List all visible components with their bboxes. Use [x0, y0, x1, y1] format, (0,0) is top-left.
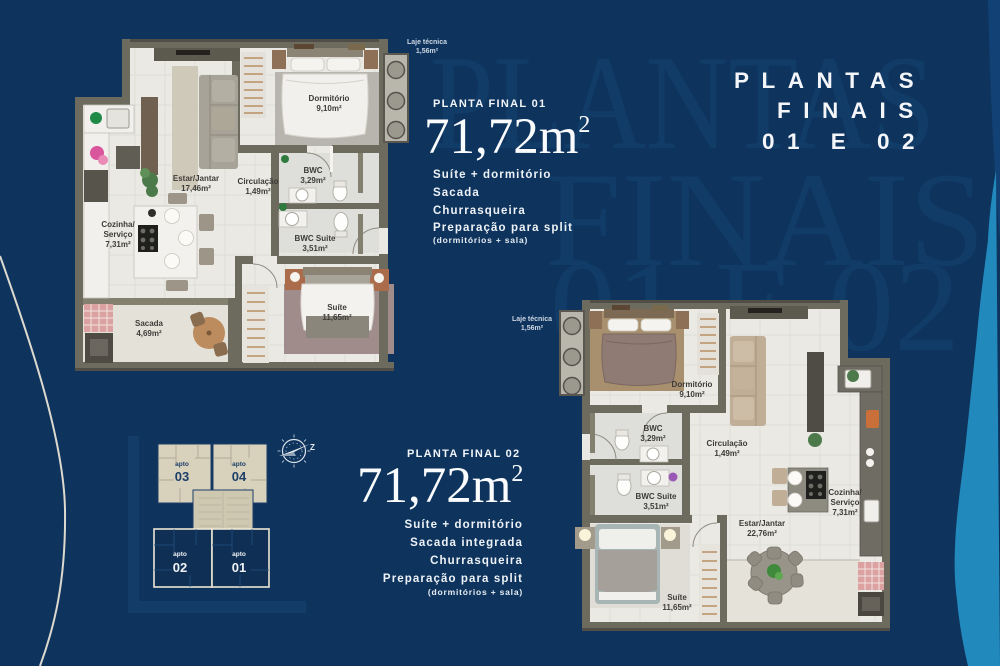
svg-text:apto: apto — [232, 551, 246, 558]
svg-text:4,69m²: 4,69m² — [136, 329, 162, 338]
svg-text:Sacada: Sacada — [433, 187, 480, 199]
svg-text:BWC: BWC — [643, 424, 662, 433]
svg-text:02: 02 — [173, 560, 187, 575]
svg-text:Circulação: Circulação — [707, 439, 748, 448]
svg-text:1,49m²: 1,49m² — [245, 187, 271, 196]
svg-text:Serviço: Serviço — [104, 230, 133, 239]
svg-text:04: 04 — [232, 469, 247, 484]
svg-text:Churrasqueira: Churrasqueira — [433, 205, 526, 217]
svg-text:3,29m²: 3,29m² — [640, 434, 666, 443]
svg-text:Preparação para split: Preparação para split — [383, 573, 523, 585]
svg-text:Sacada: Sacada — [135, 319, 164, 328]
svg-text:17,46m²: 17,46m² — [181, 184, 211, 193]
svg-text:01 E 02: 01 E 02 — [762, 129, 927, 154]
svg-text:Suíte + dormitório: Suíte + dormitório — [433, 169, 552, 181]
svg-text:Preparação para split: Preparação para split — [433, 222, 573, 234]
svg-text:7,31m²: 7,31m² — [832, 508, 858, 517]
svg-text:71,72m2: 71,72m2 — [357, 458, 523, 514]
svg-text:PLANTAS: PLANTAS — [734, 68, 926, 93]
svg-text:Serviço: Serviço — [831, 498, 860, 507]
svg-text:BWC Suite: BWC Suite — [295, 234, 336, 243]
svg-text:Laje técnica: Laje técnica — [407, 39, 447, 46]
svg-text:3,51m²: 3,51m² — [302, 244, 328, 253]
svg-text:22,76m²: 22,76m² — [747, 529, 777, 538]
svg-text:71,72m2: 71,72m2 — [424, 109, 590, 165]
svg-text:9,10m²: 9,10m² — [679, 390, 705, 399]
svg-text:Suíte + dormitório: Suíte + dormitório — [404, 519, 523, 531]
svg-text:3,29m²: 3,29m² — [300, 176, 326, 185]
svg-text:03: 03 — [175, 469, 189, 484]
svg-text:BWC: BWC — [303, 166, 322, 175]
svg-text:1,56m²: 1,56m² — [416, 48, 439, 55]
svg-text:apto: apto — [173, 551, 187, 558]
svg-text:Circulação: Circulação — [238, 177, 279, 186]
svg-text:Estar/Jantar: Estar/Jantar — [739, 519, 785, 528]
svg-text:Laje técnica: Laje técnica — [512, 316, 552, 323]
svg-text:Churrasqueira: Churrasqueira — [430, 555, 523, 567]
svg-text:Cozinha/: Cozinha/ — [101, 220, 135, 229]
svg-text:Cozinha/: Cozinha/ — [828, 488, 862, 497]
svg-text:1,56m²: 1,56m² — [521, 325, 544, 332]
svg-text:Dormitório: Dormitório — [672, 380, 713, 389]
svg-text:BWC Suite: BWC Suite — [636, 492, 677, 501]
svg-text:(dormitórios + sala): (dormitórios + sala) — [428, 587, 523, 597]
svg-text:01: 01 — [232, 560, 246, 575]
svg-text:FINAIS: FINAIS — [777, 98, 926, 123]
svg-text:apto: apto — [232, 461, 246, 468]
svg-text:9,10m²: 9,10m² — [316, 104, 342, 113]
svg-text:11,65m²: 11,65m² — [322, 313, 352, 322]
svg-text:(dormitórios + sala): (dormitórios + sala) — [433, 235, 528, 245]
svg-text:Estar/Jantar: Estar/Jantar — [173, 174, 219, 183]
svg-text:11,65m²: 11,65m² — [662, 603, 692, 612]
svg-text:3,51m²: 3,51m² — [643, 502, 669, 511]
svg-text:Suíte: Suíte — [667, 593, 687, 602]
svg-text:Sacada integrada: Sacada integrada — [410, 537, 523, 549]
svg-text:1,49m²: 1,49m² — [714, 449, 740, 458]
svg-text:apto: apto — [175, 461, 189, 468]
svg-text:Dormitório: Dormitório — [309, 94, 350, 103]
svg-text:Z: Z — [310, 443, 315, 452]
svg-text:7,31m²: 7,31m² — [105, 240, 131, 249]
svg-text:Suíte: Suíte — [327, 303, 347, 312]
